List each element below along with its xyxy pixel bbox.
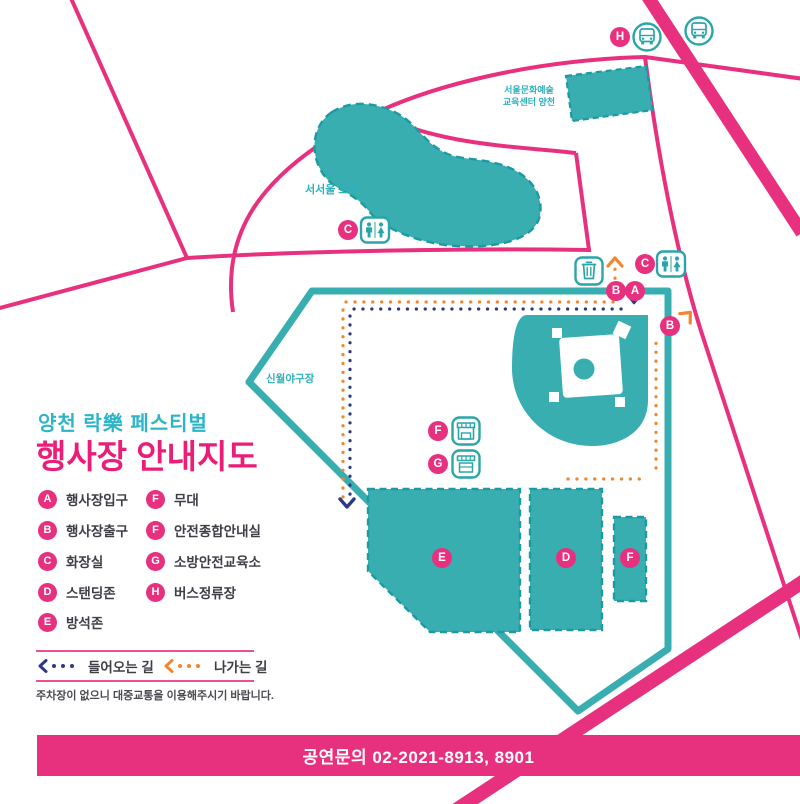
map-marker-h-bus: H [610,27,630,47]
map-marker-g-education-booth: G [428,454,448,474]
base-second [549,392,559,402]
festival-map-poster: 서서울 호수 서울문화예술 교육센터 양천 신월야구장 H C C B A B … [0,0,800,804]
road-northwest [70,0,187,258]
bus-stop-icon [686,18,713,45]
incoming-arrow-end [340,499,354,507]
field-label: 신월야구장 [266,371,314,386]
map-marker-a-entrance: A [625,281,645,301]
education-center-building [566,66,653,121]
map-marker-f-info-booth: F [428,421,448,441]
building-label: 서울문화예술 교육센터 양천 [498,85,560,108]
outgoing-arrow-b-top [608,258,622,266]
map-marker-b-exit-top: B [606,281,626,301]
pitcher-mound [574,359,595,380]
contact-text: 공연문의 02-2021-8913, 8901 [56,743,782,768]
map-marker-c-restroom-lake: C [338,220,358,240]
road-west [0,258,187,309]
building-label-line1: 서울문화예술 [504,85,554,95]
map-marker-b-exit-right: B [660,316,680,336]
map-canvas [0,0,800,804]
trash-bin-icon [576,258,603,285]
contact-ribbon: 공연문의 02-2021-8913, 8901 [37,735,800,776]
restroom-icon [361,218,389,243]
bus-stop-icon [634,24,661,51]
building-label-line2: 교육센터 양천 [503,97,555,107]
baseball-field [512,315,648,446]
base-third [615,397,625,407]
base-first [552,328,562,338]
map-marker-f-stage-zone: F [620,548,640,568]
map-marker-e-cushion-zone: E [432,548,452,568]
lake-label: 서서울 호수 [305,181,359,197]
map-marker-d-standing-zone: D [556,548,576,568]
education-booth-icon [453,451,480,478]
info-booth-icon [453,418,480,445]
zones-layer [368,489,646,632]
map-marker-c-restroom-gate: C [635,254,655,274]
page-title: 행사장 안내지도 [36,430,258,478]
restroom-icon [657,252,685,277]
